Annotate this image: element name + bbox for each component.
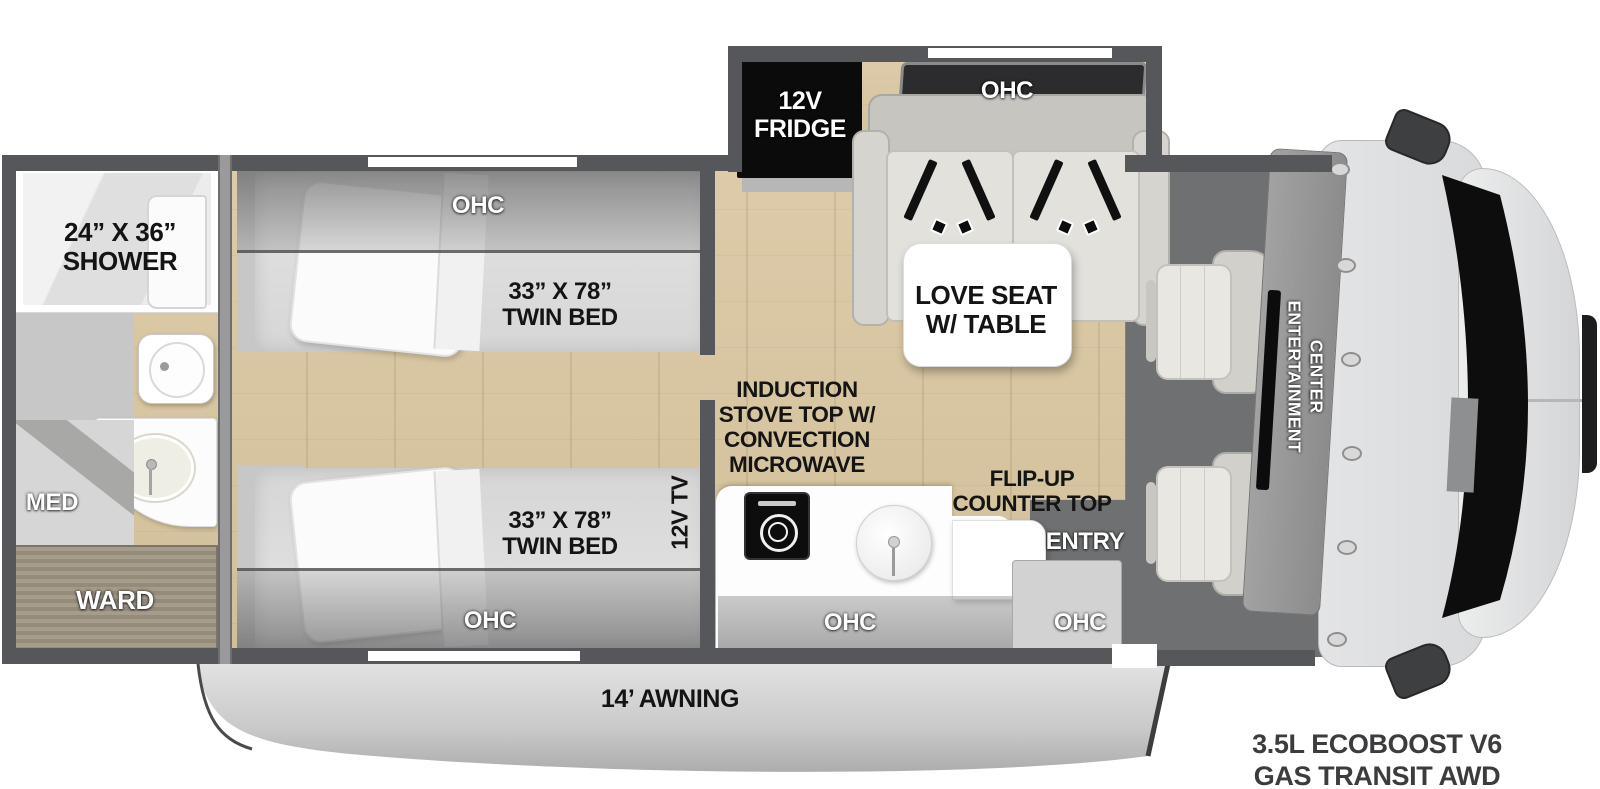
entry-door-opening	[1112, 644, 1157, 668]
bed-top-label-line2: TWIN BED	[460, 305, 660, 331]
flip-up-label-line2: COUNTER TOP	[900, 491, 1164, 516]
toilet-flush	[160, 362, 169, 371]
wall-slideout-left	[728, 46, 742, 172]
bed-top-label: 33” X 78” TWIN BED	[460, 279, 660, 332]
entertainment-label-line1: ENTERTAINMENT	[1284, 227, 1303, 527]
toilet-icon	[138, 334, 214, 404]
loveseat-label-line1: LOVE SEAT	[906, 281, 1066, 310]
wall-entry-top	[1125, 155, 1332, 172]
cooktop-vent	[758, 501, 796, 506]
shower-label: 24” X 36” SHOWER	[30, 218, 210, 275]
fridge-label-line2: FRIDGE	[742, 116, 858, 144]
wall-bed-kitchen-top	[700, 155, 715, 355]
entry-label: ENTRY	[1035, 529, 1135, 555]
seat-cushion	[1156, 466, 1232, 582]
fridge-base	[742, 178, 858, 192]
wall-left	[2, 155, 16, 664]
rivet-icon	[1327, 632, 1347, 647]
bed-top-label-line1: 33” X 78”	[460, 279, 660, 305]
wall-slideout-right	[1146, 46, 1162, 172]
front-grille	[1582, 315, 1597, 473]
fridge-label: 12V FRIDGE	[742, 88, 858, 143]
sink-handle	[149, 469, 152, 495]
cooktop-ring-inner	[768, 522, 788, 542]
rivet-icon	[1342, 446, 1362, 461]
window-top-wall	[368, 157, 577, 167]
windshield	[1420, 160, 1580, 652]
loveseat-label: LOVE SEAT W/ TABLE	[906, 281, 1066, 338]
rivet-icon	[1330, 162, 1350, 177]
rivet-icon	[1341, 352, 1361, 367]
seat-armrest	[1146, 482, 1156, 564]
flip-up-label-line1: FLIP-UP	[900, 466, 1164, 491]
seat-armrest	[1146, 280, 1156, 362]
fridge-label-line1: 12V	[742, 88, 858, 116]
stove-label-line1: INDUCTION	[672, 377, 922, 402]
kitchen-faucet-handle	[892, 548, 895, 576]
ohc-entry-label: OHC	[1030, 610, 1130, 636]
bed-bottom-label-line1: 33” X 78”	[460, 508, 660, 534]
shower-label-line2: SHOWER	[30, 247, 210, 276]
bathroom-floor	[16, 300, 134, 422]
window-bottom-wall	[368, 651, 580, 661]
med-cabinet	[14, 420, 134, 546]
wall-top-main	[2, 155, 730, 171]
bed-bottom-label: 33” X 78” TWIN BED	[460, 508, 660, 561]
ohc-kitchen-label: OHC	[800, 610, 900, 636]
kitchen-faucet	[888, 536, 900, 548]
cab-seat-top	[1146, 250, 1272, 390]
med-label: MED	[16, 490, 88, 516]
seat-cushion	[1156, 264, 1232, 380]
induction-cooktop-icon	[744, 492, 810, 560]
floorplan-canvas: 14’ AWNING 24” X 36” SHOWER MED WARD OHC…	[0, 0, 1600, 789]
loveseat-label-line2: W/ TABLE	[906, 310, 1066, 339]
entry-ohc-cabinet	[1012, 560, 1122, 652]
wall-bottom-right	[1157, 650, 1315, 666]
ward-label: WARD	[40, 586, 190, 615]
wall-bed-kitchen-bottom	[700, 400, 715, 663]
ohc-bed-top-label: OHC	[428, 193, 528, 219]
rivet-icon	[1337, 540, 1357, 555]
bed-bottom-label-line2: TWIN BED	[460, 534, 660, 560]
engine-label-line1: 3.5L ECOBOOST V6	[1212, 728, 1542, 760]
toilet-bowl	[149, 342, 205, 398]
engine-label: 3.5L ECOBOOST V6 GAS TRANSIT AWD	[1212, 728, 1542, 789]
loveseat-armrest-left	[852, 130, 890, 326]
flip-up-label: FLIP-UP COUNTER TOP	[900, 466, 1164, 516]
ohc-slideout-label: OHC	[957, 78, 1057, 104]
ohc-bed-bottom-label: OHC	[440, 608, 540, 634]
shower-label-line1: 24” X 36”	[30, 218, 210, 247]
engine-label-line2: GAS TRANSIT AWD	[1212, 760, 1542, 789]
entertainment-label-line2: CENTER	[1306, 227, 1325, 527]
window-slideout-wall	[928, 48, 1112, 58]
wall-bath-divider	[218, 155, 232, 664]
rivet-icon	[1336, 258, 1356, 273]
awning-label: 14’ AWNING	[540, 686, 800, 714]
awning	[190, 660, 1190, 788]
